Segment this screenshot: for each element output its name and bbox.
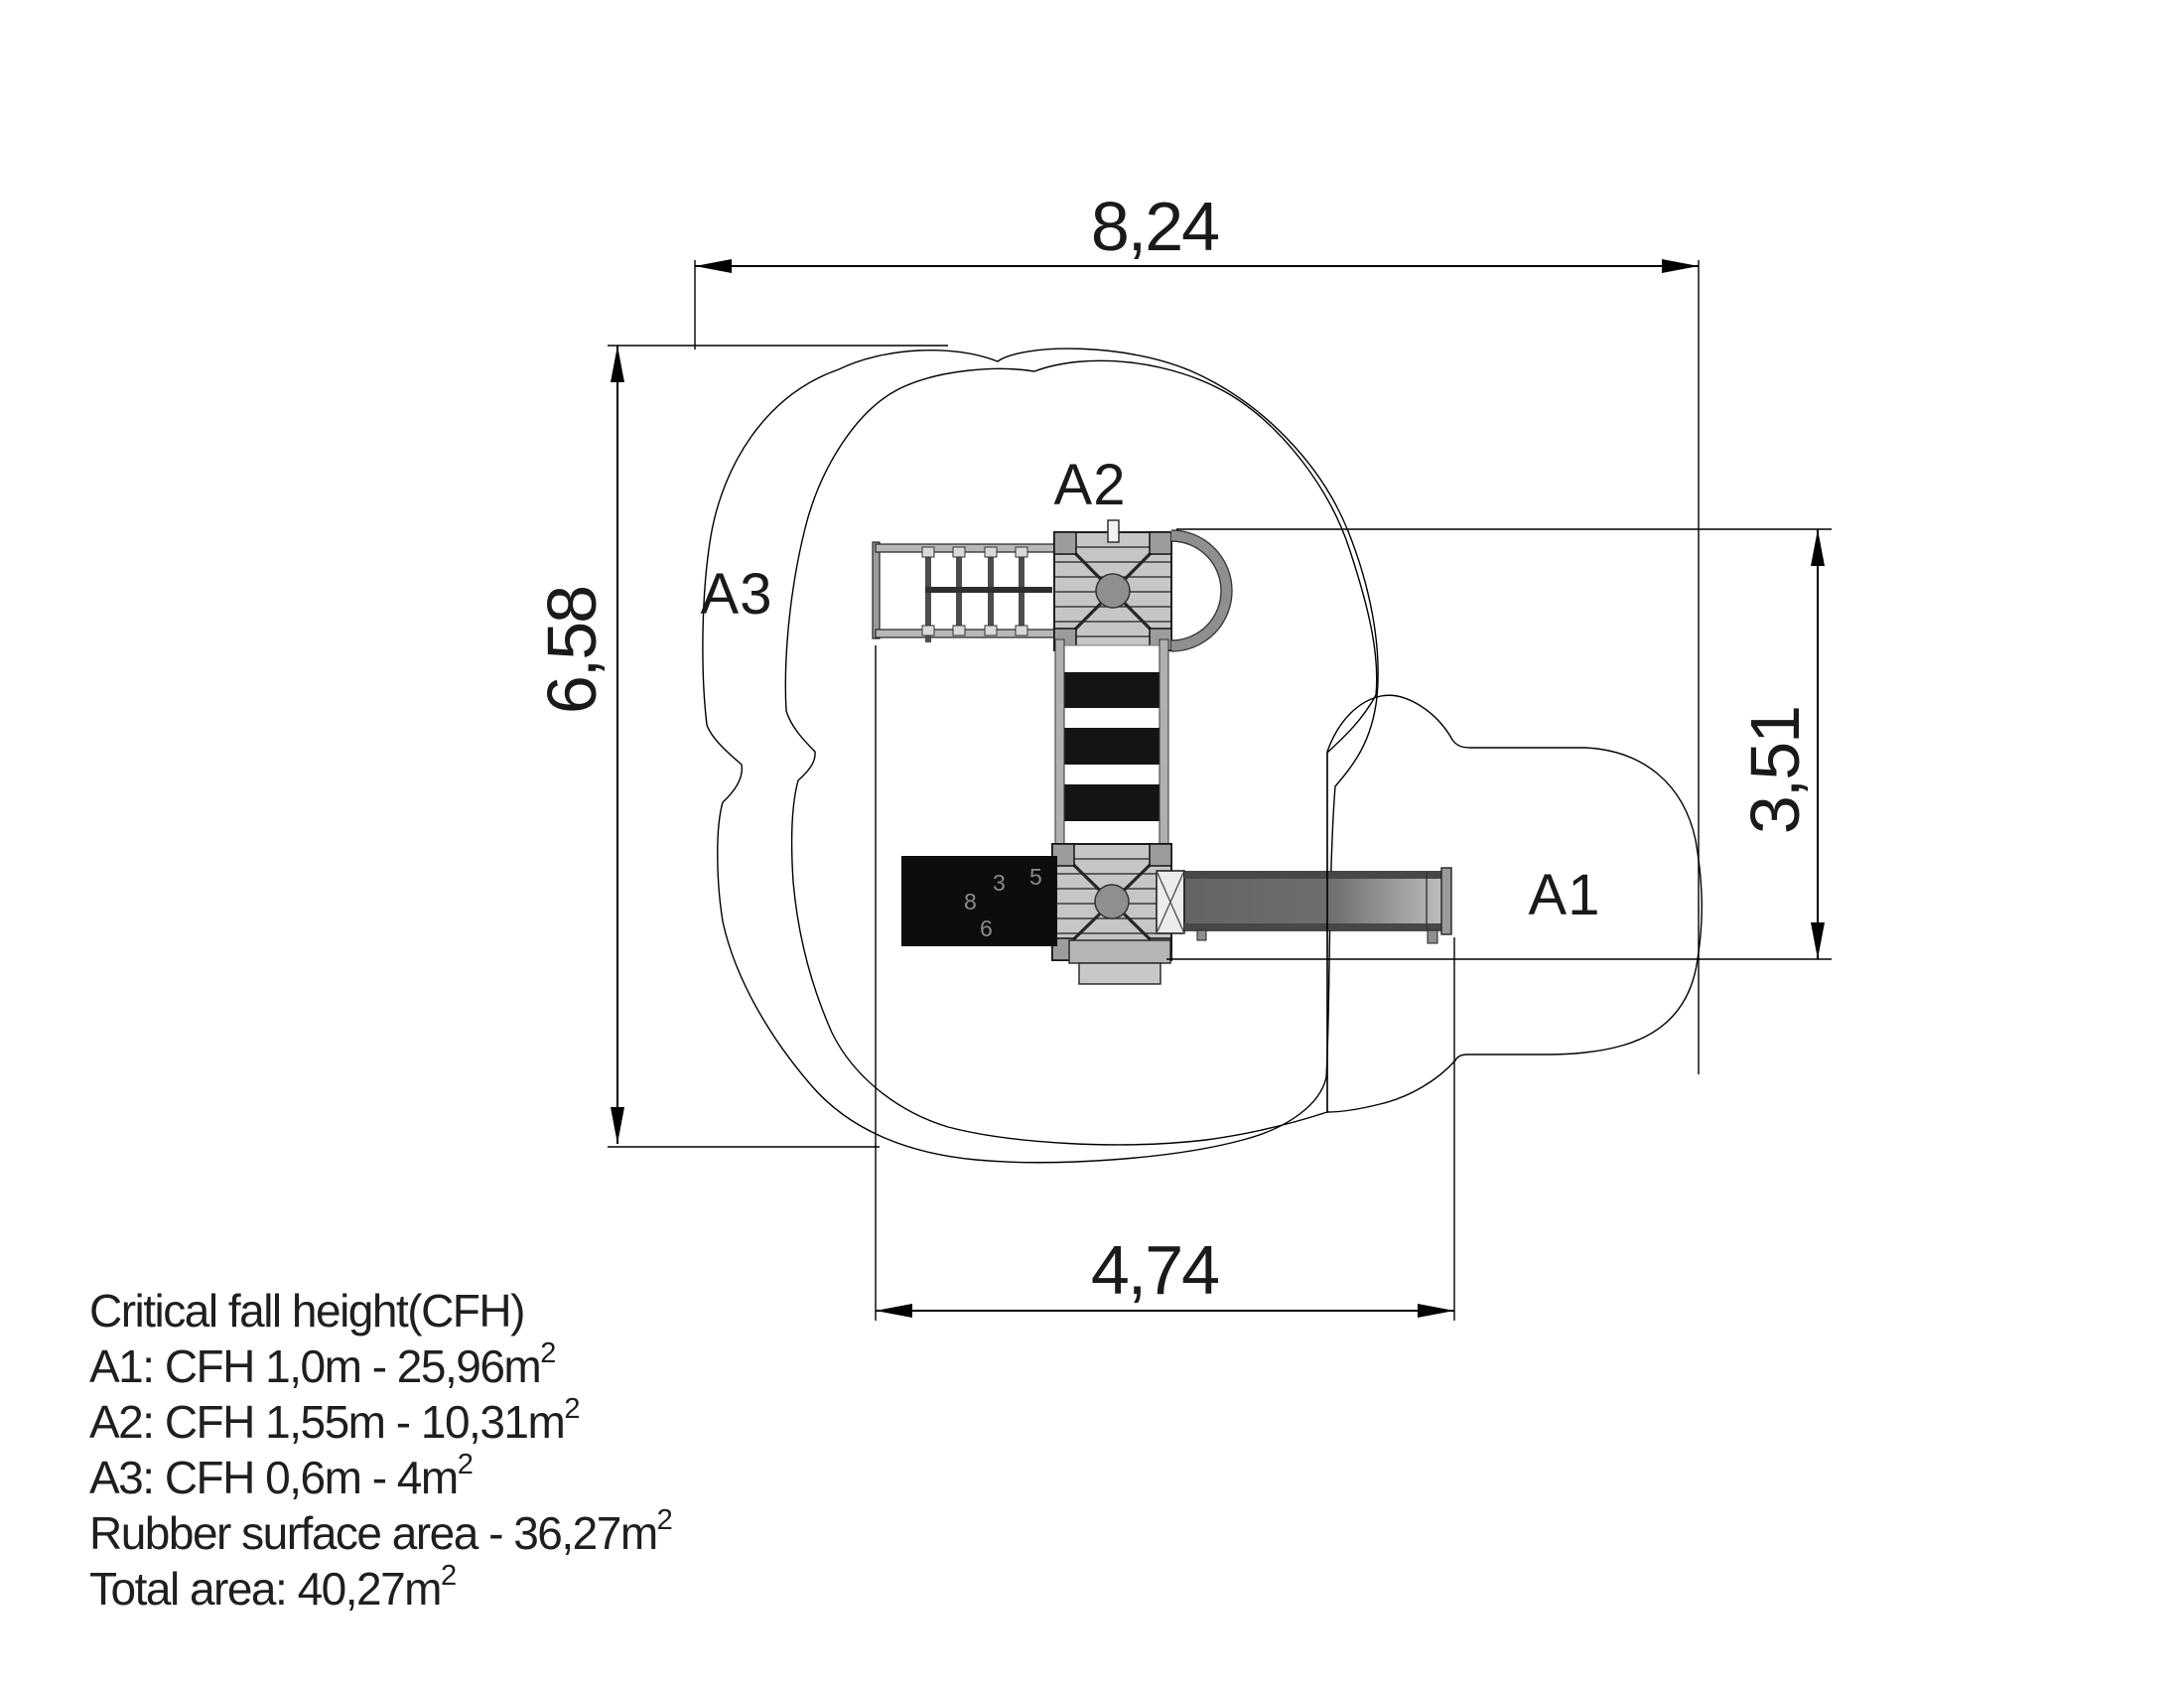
dimension-width-total: 8,24: [695, 188, 1699, 1074]
slide-end-cap: [1441, 868, 1451, 934]
dimension-arrow-right: [1662, 259, 1699, 273]
panel-digit: 6: [980, 915, 993, 941]
dimension-arrow-right: [1418, 1304, 1454, 1318]
legend-line: Rubber surface area - 36,27m2: [89, 1504, 673, 1559]
corner-post: [1150, 532, 1171, 554]
legend-line: Total area: 40,27m2: [89, 1560, 457, 1615]
access-ladder: [873, 542, 1055, 642]
legend-line: Critical fall height(CFH): [89, 1285, 524, 1336]
dimension-arrow-left: [876, 1304, 912, 1318]
zone-label-a3: A3: [701, 562, 773, 627]
legend-line: A2: CFH 1,55m - 10,31m2: [89, 1393, 580, 1448]
playground-equipment: 3 5 8 6: [873, 520, 1451, 984]
dimension-value-left: 6,58: [533, 587, 611, 714]
slide: [1157, 868, 1451, 943]
panel-digit: 5: [1029, 864, 1042, 890]
zone-label-a2: A2: [1054, 453, 1127, 517]
ladder-rungs: [922, 547, 1027, 642]
slide-rail-top: [1184, 872, 1449, 879]
ramp-step-black: [1064, 672, 1160, 708]
ladder-left-cap: [873, 542, 880, 638]
dimension-height-total: 6,58: [533, 346, 948, 1147]
legend-line: A3: CFH 0,6m - 4m2: [89, 1449, 474, 1503]
ladder-mid-bar: [925, 587, 1052, 593]
platform-post-center: [1095, 885, 1129, 918]
dimension-value-top: 8,24: [1091, 188, 1218, 265]
ramp-step-black: [1064, 784, 1160, 821]
ramp-rail-left: [1055, 639, 1064, 856]
activity-panel: 3 5 8 6: [901, 856, 1057, 946]
panel-digit: 8: [964, 889, 977, 914]
access-steps: [1069, 940, 1170, 984]
dimension-arrow-down: [611, 1107, 624, 1144]
corner-post: [1054, 532, 1076, 554]
zone-label-a1: A1: [1529, 863, 1601, 927]
tower-platform-top: [1054, 520, 1171, 650]
dimension-value-right: 3,51: [1736, 707, 1814, 834]
legend-line: A1: CFH 1,0m - 25,96m2: [89, 1337, 556, 1392]
ramp-rail-right: [1160, 639, 1168, 856]
corner-post: [1150, 844, 1171, 866]
panel-digit: 3: [993, 870, 1006, 896]
pole-stub: [1108, 520, 1119, 542]
dimension-arrow-up: [1811, 529, 1825, 566]
platform-post-center: [1096, 574, 1130, 608]
slide-rail-bottom: [1184, 923, 1449, 930]
climbing-ramp: [1055, 639, 1168, 856]
playground-safety-plan: 3 5 8 6 A3 A2: [0, 0, 2184, 1688]
legend-block: Critical fall height(CFH) A1: CFH 1,0m -…: [89, 1285, 673, 1615]
slide-foot: [1428, 930, 1437, 943]
dimension-arrow-down: [1811, 922, 1825, 959]
dimension-value-bottom: 4,74: [1091, 1231, 1218, 1309]
ramp-step-black: [1064, 728, 1160, 765]
slide-chute: [1184, 872, 1449, 930]
plan-drawing-canvas: 3 5 8 6 A3 A2: [0, 0, 2184, 1688]
dimension-arrow-up: [611, 346, 624, 382]
slide-foot: [1197, 930, 1206, 940]
dimension-arrow-left: [695, 259, 732, 273]
